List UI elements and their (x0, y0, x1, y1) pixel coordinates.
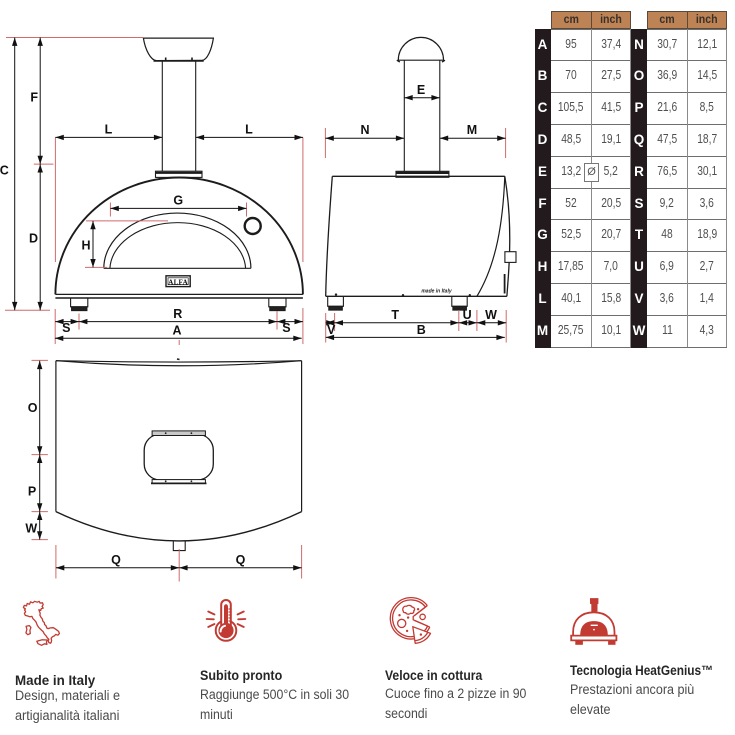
svg-text:A: A (172, 324, 181, 338)
svg-text:L: L (245, 122, 253, 136)
svg-text:R: R (173, 307, 182, 321)
svg-text:W: W (485, 308, 497, 322)
svg-text:S: S (282, 321, 290, 335)
svg-text:D: D (29, 231, 38, 245)
svg-text:C: C (0, 163, 9, 177)
svg-text:M: M (467, 123, 477, 137)
svg-text:G: G (173, 194, 183, 208)
svg-text:made in Italy: made in Italy (421, 288, 452, 294)
svg-text:E: E (417, 83, 425, 97)
svg-text:F: F (30, 90, 38, 104)
svg-text:L: L (105, 122, 113, 136)
svg-text:W: W (25, 521, 37, 535)
svg-text:P: P (28, 484, 36, 498)
svg-text:N: N (360, 123, 369, 137)
svg-text:Q: Q (111, 553, 121, 567)
svg-text:B: B (417, 323, 426, 337)
svg-text:T: T (391, 308, 399, 322)
svg-text:Q: Q (236, 553, 246, 567)
svg-text:O: O (28, 401, 38, 415)
svg-text:V: V (327, 323, 336, 337)
svg-text:H: H (81, 239, 90, 253)
svg-text:ALFA: ALFA (168, 278, 188, 286)
svg-text:S: S (62, 321, 70, 335)
svg-text:U: U (463, 308, 472, 322)
